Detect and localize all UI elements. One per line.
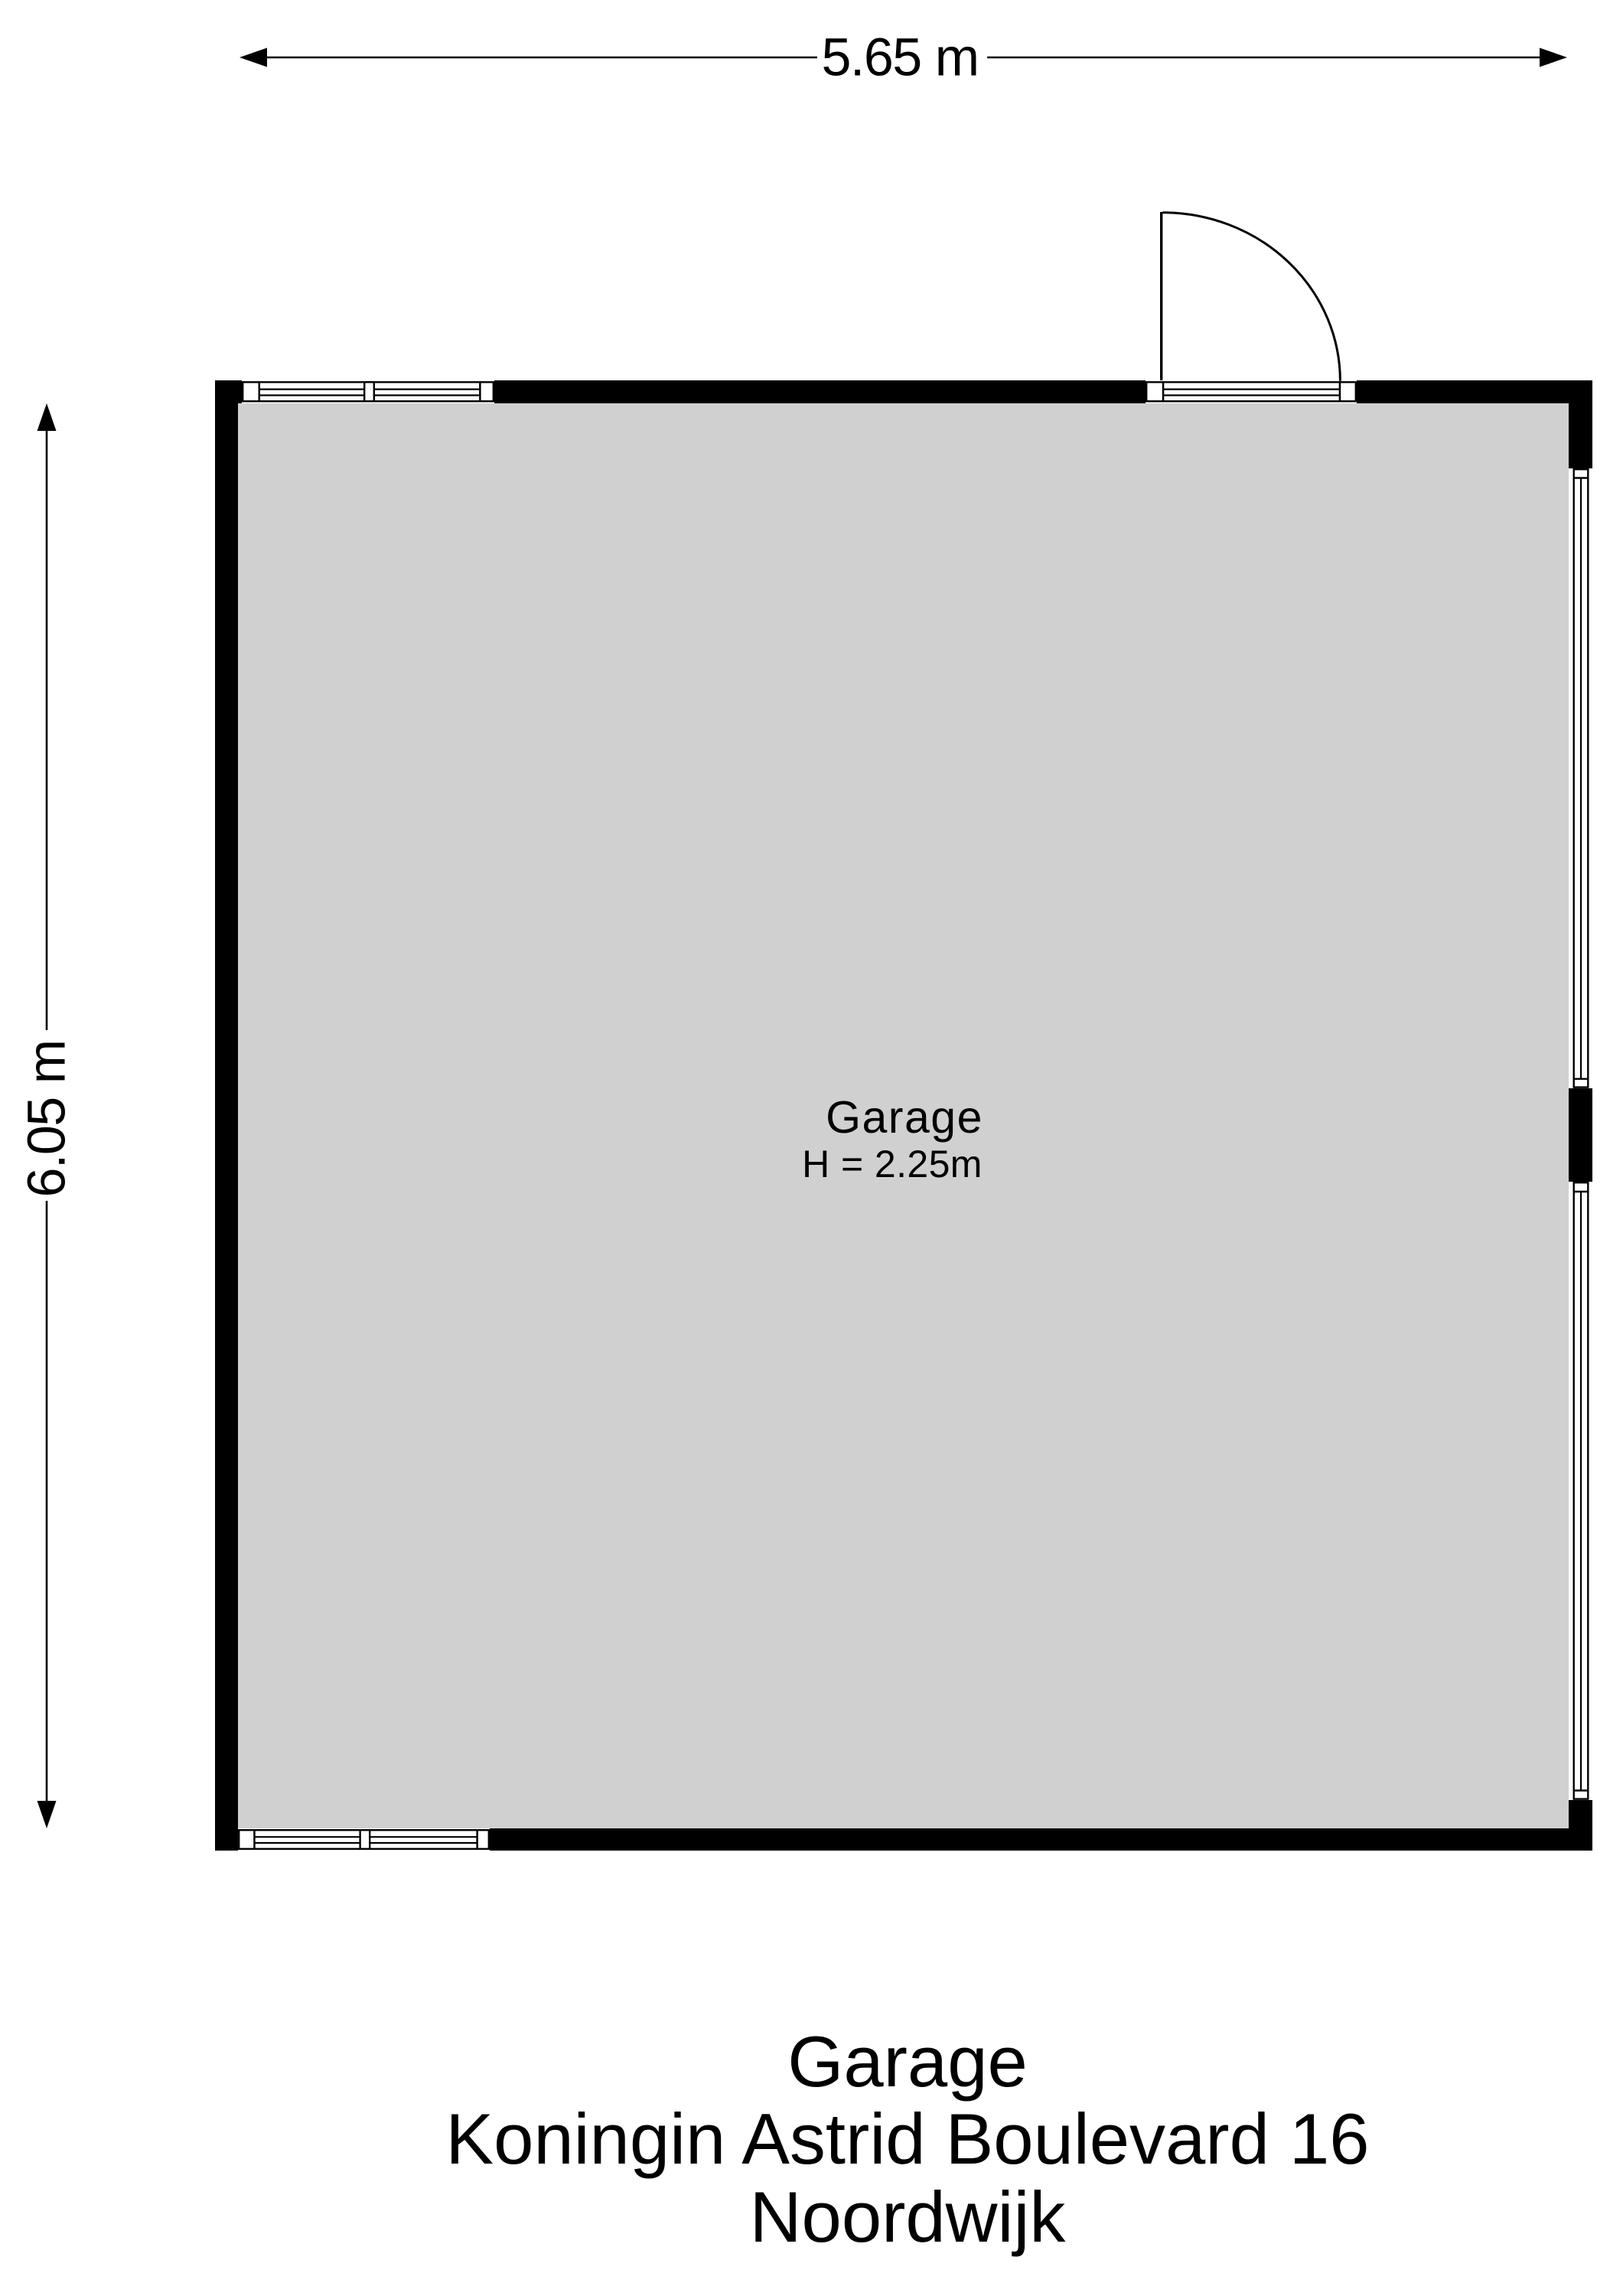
svg-text:5.65 m: 5.65 m — [822, 28, 979, 87]
svg-text:6.05 m: 6.05 m — [17, 1041, 77, 1198]
svg-text:Garage: Garage — [787, 2021, 1028, 2102]
svg-text:Koningin Astrid Boulevard 16: Koningin Astrid Boulevard 16 — [445, 2099, 1369, 2179]
svg-text:Noordwijk: Noordwijk — [750, 2177, 1067, 2257]
svg-text:Garage: Garage — [826, 1092, 983, 1143]
svg-text:H = 2.25m: H = 2.25m — [802, 1143, 983, 1186]
